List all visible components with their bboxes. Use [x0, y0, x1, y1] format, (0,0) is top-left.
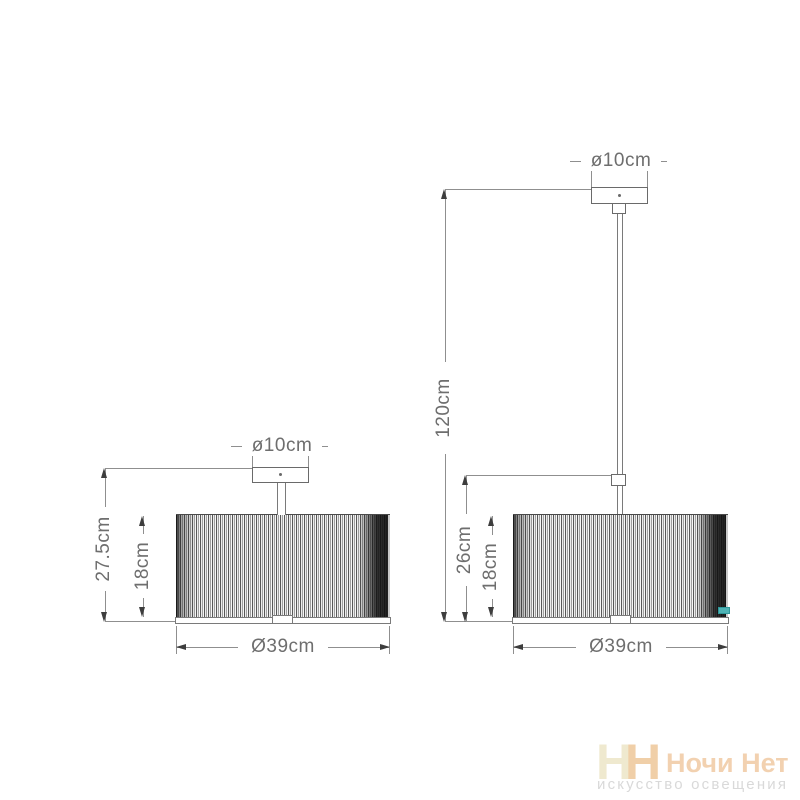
left-shade-diameter-label: Ø39cm: [238, 637, 328, 658]
right-shade-diameter-label: Ø39cm: [576, 637, 666, 658]
left-canopy-diameter-label: ø10cm: [242, 436, 322, 456]
left-lamp-pleated-shade: [176, 514, 390, 618]
left-shade-height-label: 18cm: [133, 534, 153, 598]
right-lamp-cord-grip: [612, 203, 626, 214]
arrowhead-up: [488, 516, 494, 526]
right-lamp-pleated-shade: [513, 514, 728, 618]
right-lamp-rod-lower: [617, 486, 623, 514]
left-total-height-label: 27.5cm: [94, 507, 114, 591]
right-shade-height-label: 18cm: [481, 535, 501, 599]
arrowhead-down: [139, 607, 145, 617]
arrowhead-up: [462, 475, 468, 485]
extension-line: [445, 189, 591, 190]
left-lamp-stem: [277, 482, 286, 515]
arrowhead-up: [101, 468, 107, 478]
canopy-screw-dot: [618, 194, 621, 197]
arrowhead-up: [441, 189, 447, 199]
arrowhead-left: [513, 644, 523, 650]
brand-name: Ночи Нет: [666, 750, 788, 776]
left-lamp-bottom-fitting: [272, 615, 293, 624]
shade-brand-tag: [718, 607, 730, 614]
arrowhead-right: [380, 644, 390, 650]
arrowhead-up: [139, 516, 145, 526]
right-suspension-height-label: 26cm: [455, 514, 475, 586]
extension-line: [466, 475, 612, 476]
brand-tagline: искусство освещения: [597, 777, 788, 793]
arrowhead-down: [101, 612, 107, 622]
arrowhead-right: [718, 644, 728, 650]
right-lamp-rod-connector: [611, 474, 626, 486]
left-lamp-canopy: [252, 467, 309, 483]
arrowhead-left: [176, 644, 186, 650]
canopy-screw-dot: [279, 473, 282, 476]
right-lamp-canopy: [591, 187, 648, 204]
right-canopy-diameter-label: ø10cm: [581, 151, 661, 171]
extension-line: [105, 621, 176, 622]
arrowhead-down: [462, 612, 468, 622]
right-lamp-rod-upper: [617, 214, 623, 475]
arrowhead-down: [488, 607, 494, 617]
right-total-height-label: 120cm: [434, 362, 454, 454]
arrowhead-down: [441, 612, 447, 622]
right-lamp-bottom-fitting: [610, 615, 631, 624]
extension-line: [105, 468, 253, 469]
extension-line: [445, 621, 513, 622]
lamp-dimension-diagram: ø10cm 27.5cm 18cm Ø39cm: [0, 0, 800, 800]
